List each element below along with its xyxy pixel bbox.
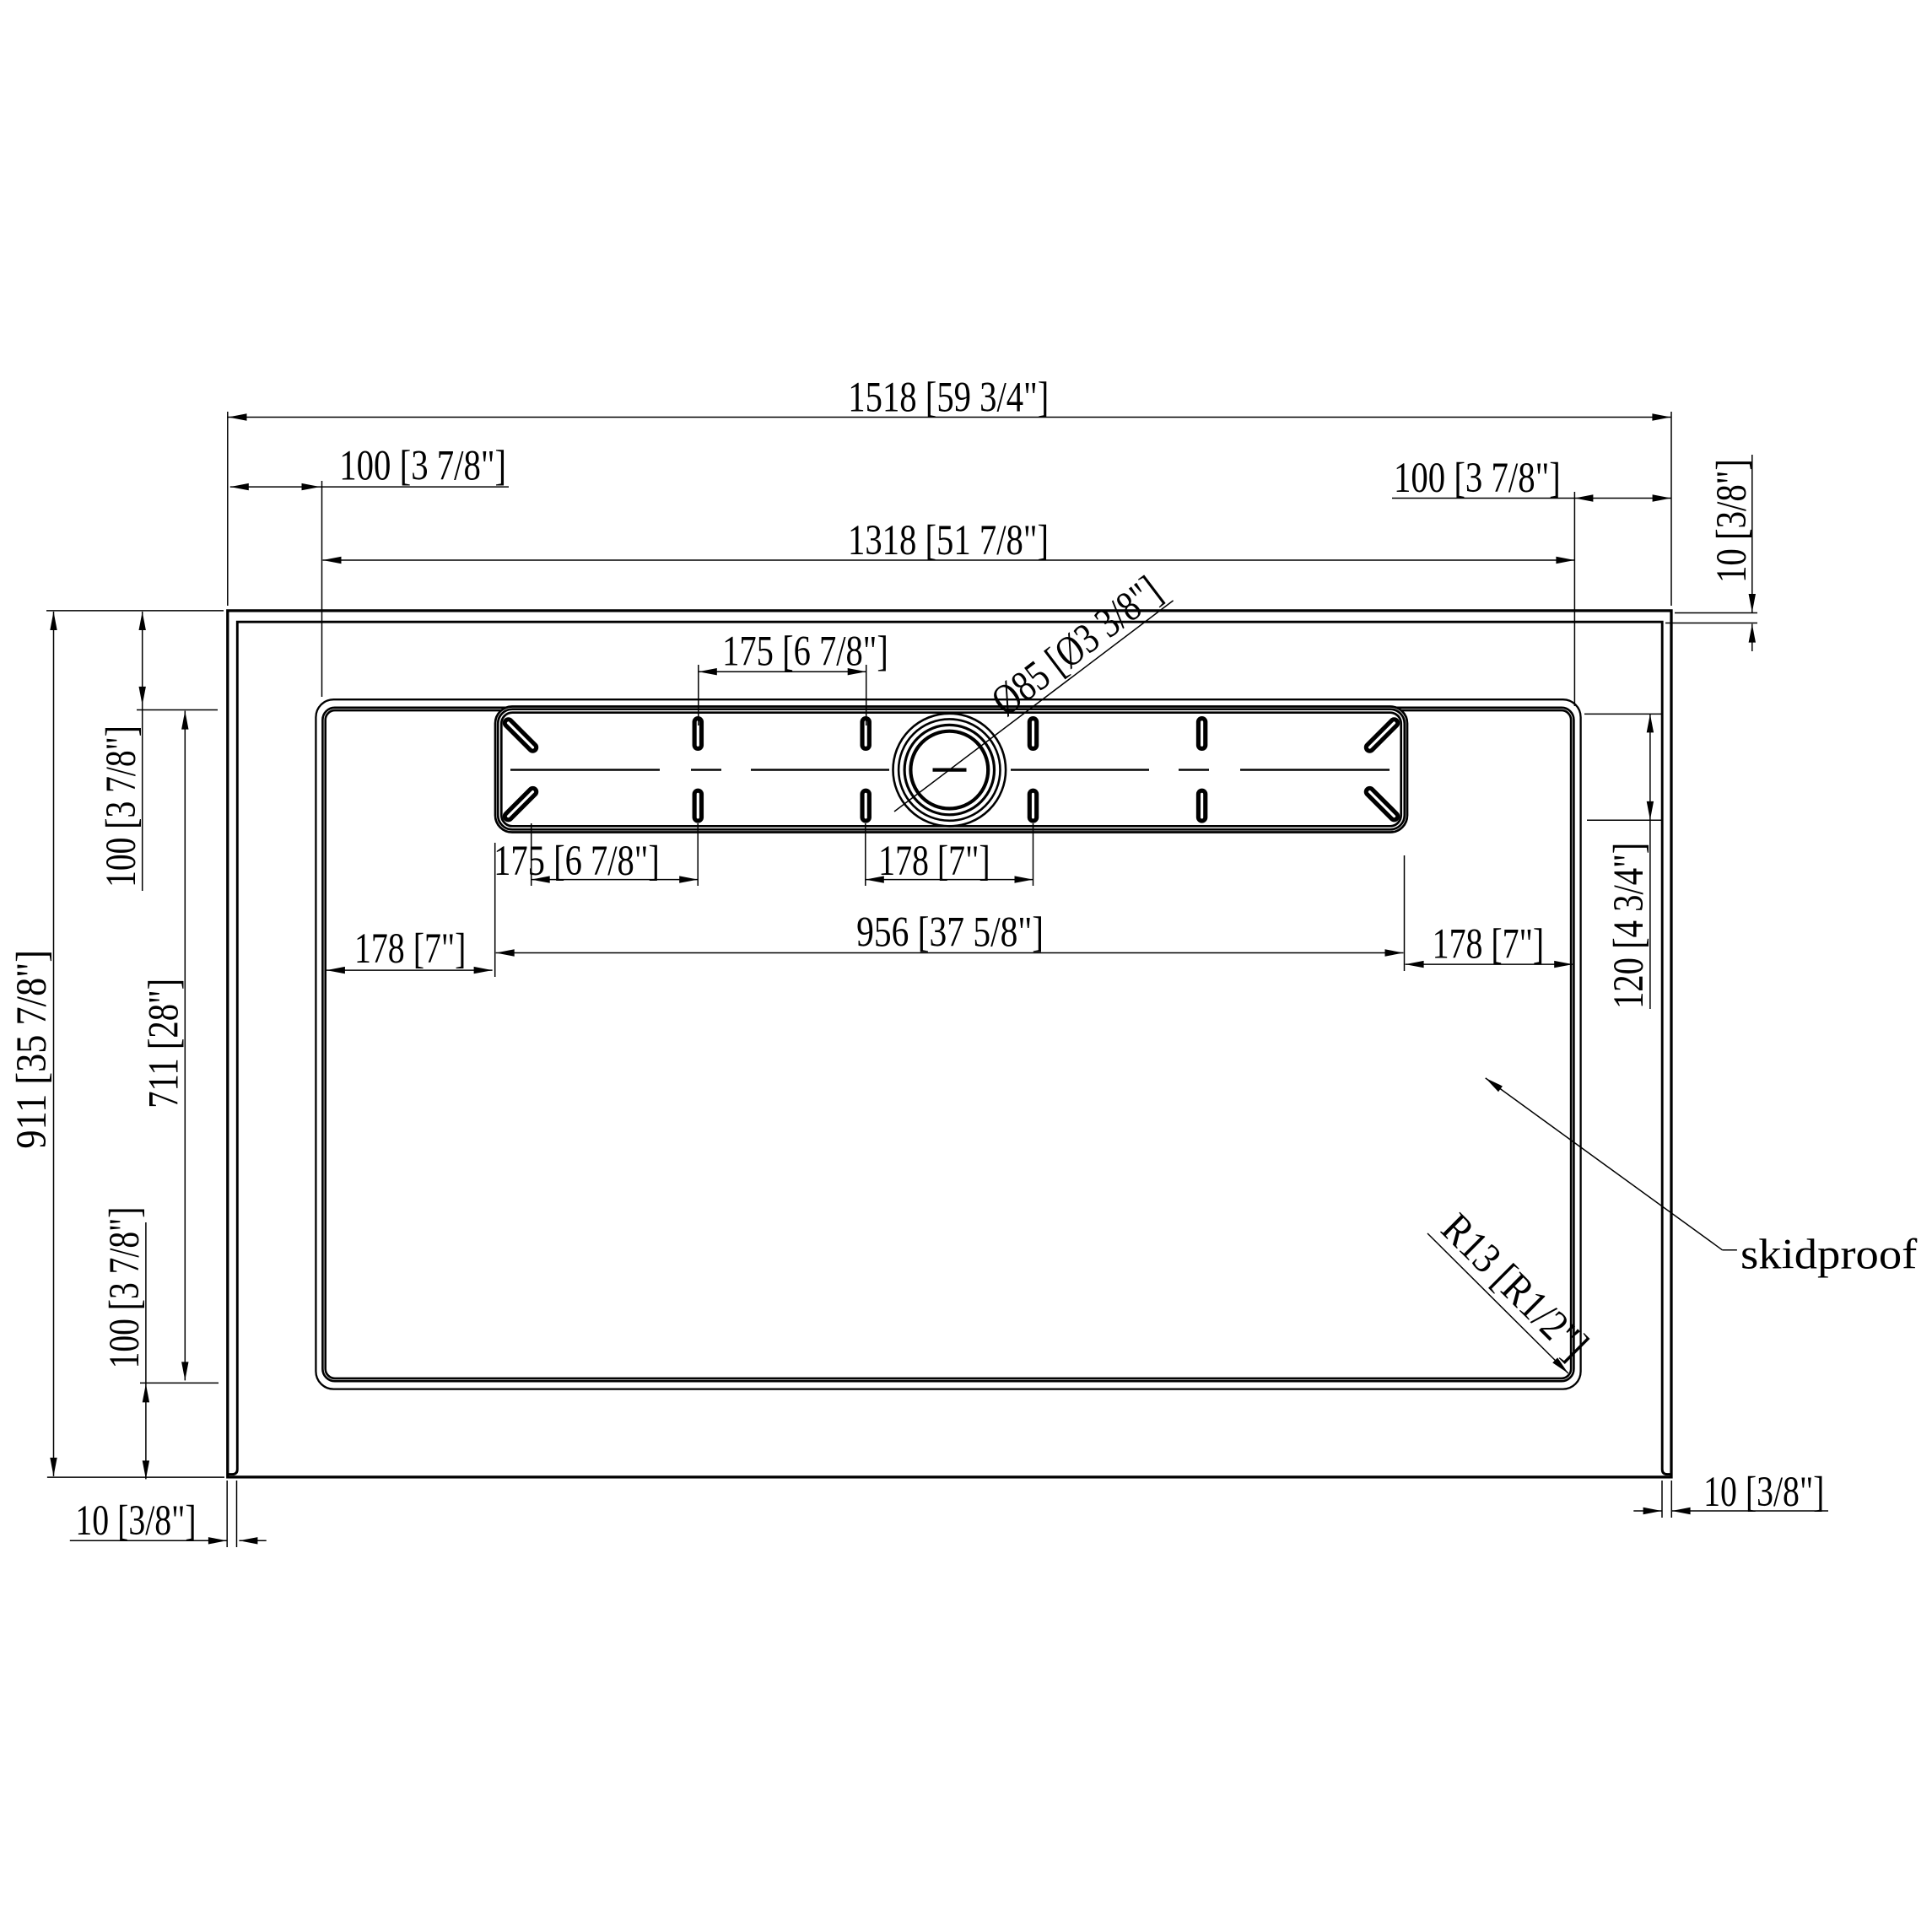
svg-text:100 [3 7/8"]: 100 [3 7/8"] <box>101 1207 148 1369</box>
svg-text:956 [37 5/8"]: 956 [37 5/8"] <box>856 909 1044 956</box>
svg-text:100 [3 7/8"]: 100 [3 7/8"] <box>1394 455 1561 502</box>
svg-text:10 [3/8"]: 10 [3/8"] <box>1708 459 1756 583</box>
svg-text:1518 [59 3/4"]: 1518 [59 3/4"] <box>848 375 1049 422</box>
svg-text:178 [7"]: 178 [7"] <box>1433 921 1545 968</box>
svg-text:1318 [51 7/8"]: 1318 [51 7/8"] <box>848 517 1049 564</box>
svg-text:178 [7"]: 178 [7"] <box>354 925 467 973</box>
svg-text:10 [3/8"]: 10 [3/8"] <box>75 1497 196 1545</box>
svg-text:178 [7"]: 178 [7"] <box>878 838 990 885</box>
svg-text:120 [4 3/4"]: 120 [4 3/4"] <box>1606 843 1653 1009</box>
svg-text:100 [3 7/8"]: 100 [3 7/8"] <box>98 725 145 887</box>
svg-text:skidproof: skidproof <box>1740 1231 1917 1278</box>
svg-text:175 [6 7/8"]: 175 [6 7/8"] <box>494 838 660 885</box>
svg-text:10 [3/8"]: 10 [3/8"] <box>1703 1469 1824 1516</box>
svg-text:175 [6 7/8"]: 175 [6 7/8"] <box>722 628 888 676</box>
svg-text:911 [35 7/8"]: 911 [35 7/8"] <box>8 950 56 1149</box>
svg-text:100 [3 7/8"]: 100 [3 7/8"] <box>339 443 506 490</box>
svg-text:711 [28"]: 711 [28"] <box>140 979 187 1108</box>
